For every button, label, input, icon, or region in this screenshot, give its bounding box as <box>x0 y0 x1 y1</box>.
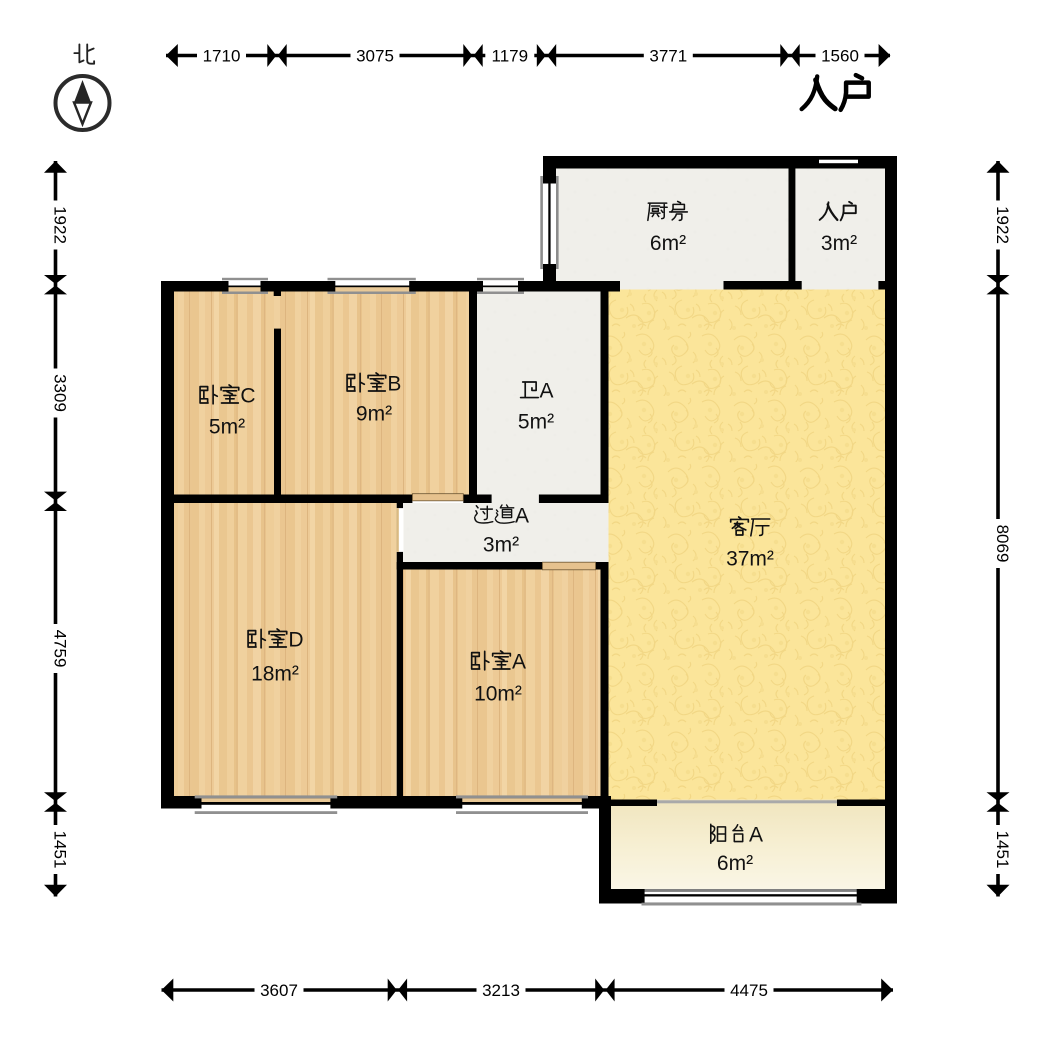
svg-text:3771: 3771 <box>649 47 687 66</box>
svg-text:4475: 4475 <box>730 981 768 1000</box>
svg-text:1922: 1922 <box>50 206 69 244</box>
svg-text:1560: 1560 <box>821 47 859 66</box>
svg-text:6m²: 6m² <box>717 852 753 875</box>
svg-text:A: A <box>512 651 526 674</box>
svg-text:A: A <box>539 380 553 403</box>
svg-text:1710: 1710 <box>203 47 241 66</box>
svg-text:C: C <box>240 385 255 408</box>
svg-text:3213: 3213 <box>482 981 520 1000</box>
svg-text:8069: 8069 <box>993 525 1012 563</box>
svg-text:3075: 3075 <box>356 47 394 66</box>
svg-text:5m²: 5m² <box>518 411 554 434</box>
svg-text:3607: 3607 <box>260 981 298 1000</box>
svg-text:3m²: 3m² <box>483 534 519 557</box>
svg-text:A: A <box>749 824 763 847</box>
svg-text:1179: 1179 <box>492 47 529 66</box>
svg-text:6m²: 6m² <box>650 232 686 255</box>
svg-text:1922: 1922 <box>993 206 1012 244</box>
svg-text:9m²: 9m² <box>356 403 392 426</box>
svg-text:3m²: 3m² <box>821 232 857 255</box>
svg-text:B: B <box>387 373 401 396</box>
svg-text:1451: 1451 <box>993 831 1012 869</box>
svg-text:A: A <box>515 505 529 528</box>
svg-text:5m²: 5m² <box>209 416 245 439</box>
svg-text:3309: 3309 <box>50 374 69 412</box>
svg-text:10m²: 10m² <box>474 683 522 706</box>
svg-text:1451: 1451 <box>50 831 69 869</box>
svg-text:37m²: 37m² <box>726 548 774 571</box>
svg-text:4759: 4759 <box>50 630 69 668</box>
svg-text:18m²: 18m² <box>251 662 299 685</box>
svg-text:D: D <box>288 629 303 652</box>
